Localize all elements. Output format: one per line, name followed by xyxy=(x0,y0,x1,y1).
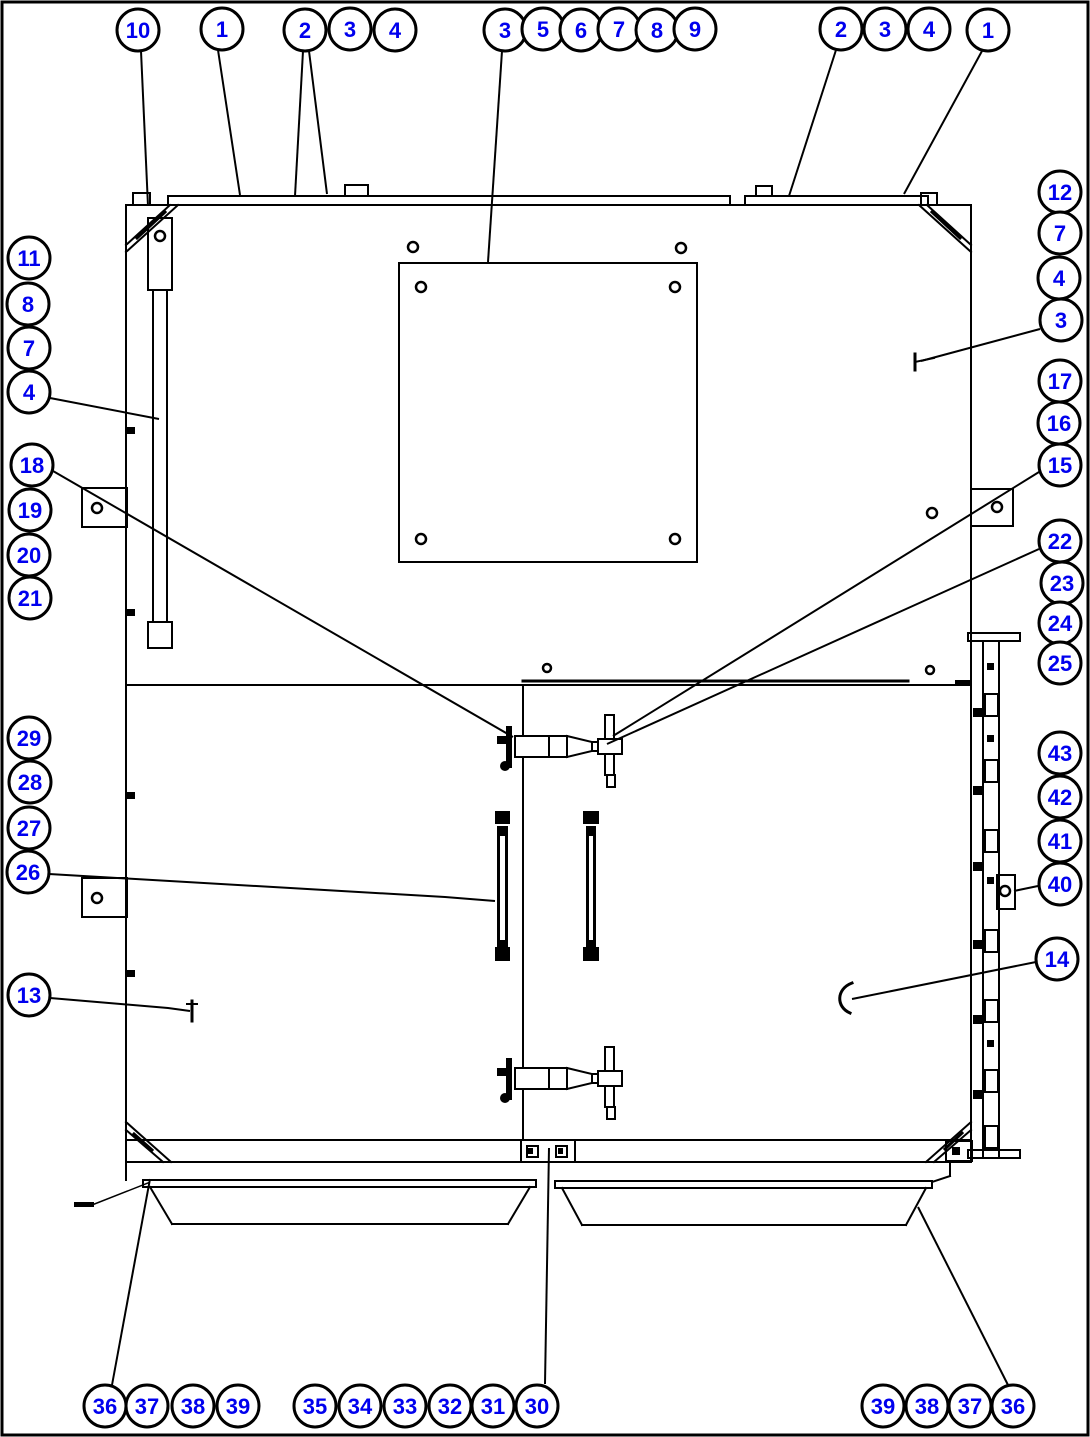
callout-balloon-21: 21 xyxy=(9,577,51,619)
leader-line-3 xyxy=(488,51,502,262)
balloon-number: 28 xyxy=(18,770,42,795)
balloon-number: 38 xyxy=(181,1394,205,1419)
callout-balloon-3: 3 xyxy=(329,8,371,50)
callout-balloon-1: 1 xyxy=(967,9,1009,51)
callout-balloon-7: 7 xyxy=(8,327,50,369)
callout-balloon-29: 29 xyxy=(8,717,50,759)
callout-balloon-30: 30 xyxy=(516,1385,558,1427)
door-hook xyxy=(840,983,852,1013)
balloon-number: 34 xyxy=(348,1394,373,1419)
leader-line-10 xyxy=(141,51,148,206)
leader-line-18 xyxy=(53,471,513,737)
balloon-number: 40 xyxy=(1048,872,1072,897)
callout-balloon-4: 4 xyxy=(1038,257,1080,299)
callout-balloon-6: 6 xyxy=(560,9,602,51)
balloon-number: 9 xyxy=(689,17,701,42)
balloon-number: 6 xyxy=(575,18,587,43)
leader-line-36 xyxy=(918,1207,1008,1385)
corner-gusset-top-left xyxy=(126,205,178,252)
balloon-number: 43 xyxy=(1048,741,1072,766)
callout-balloon-17: 17 xyxy=(1039,360,1081,402)
balloon-number: 7 xyxy=(613,17,625,42)
right-door-handle xyxy=(583,811,599,961)
balloon-number: 33 xyxy=(393,1394,417,1419)
leader-line-40 xyxy=(1014,886,1038,891)
leader-line-2 xyxy=(295,51,303,196)
callout-balloon-37: 37 xyxy=(126,1385,168,1427)
callout-balloon-14: 14 xyxy=(1036,938,1078,980)
balloon-number: 37 xyxy=(135,1394,159,1419)
roof-rail xyxy=(133,185,937,205)
upper-turnbuckle-latch xyxy=(497,715,622,787)
callout-balloon-43: 43 xyxy=(1039,732,1081,774)
callout-balloon-39: 39 xyxy=(862,1385,904,1427)
callout-balloon-16: 16 xyxy=(1038,402,1080,444)
callout-balloon-32: 32 xyxy=(429,1385,471,1427)
balloon-number: 3 xyxy=(499,18,511,43)
callout-balloon-24: 24 xyxy=(1039,602,1081,644)
balloon-number: 25 xyxy=(1048,651,1072,676)
callout-balloon-5: 5 xyxy=(522,8,564,50)
leader-line-4 xyxy=(50,398,159,419)
leader-line-26 xyxy=(49,874,495,901)
callout-balloon-7: 7 xyxy=(1039,212,1081,254)
balloon-number: 3 xyxy=(1055,308,1067,333)
callout-balloon-22: 22 xyxy=(1039,520,1081,562)
callout-balloon-18: 18 xyxy=(11,444,53,486)
callout-balloon-33: 33 xyxy=(384,1385,426,1427)
balloon-number: 30 xyxy=(525,1394,549,1419)
balloon-number: 31 xyxy=(481,1394,505,1419)
callout-balloon-2: 2 xyxy=(820,8,862,50)
callout-balloon-31: 31 xyxy=(472,1385,514,1427)
callout-balloon-38: 38 xyxy=(906,1385,948,1427)
callout-balloon-25: 25 xyxy=(1039,642,1081,684)
balloon-number: 4 xyxy=(1053,266,1066,291)
left-edge-bolts xyxy=(127,427,135,977)
callout-balloon-13: 13 xyxy=(8,974,50,1016)
balloon-number: 16 xyxy=(1047,411,1071,436)
balloon-number: 24 xyxy=(1048,611,1073,636)
balloon-number: 3 xyxy=(344,17,356,42)
left-hinge-strip xyxy=(148,218,172,648)
balloon-number: 21 xyxy=(18,586,42,611)
balloon-number: 4 xyxy=(923,17,936,42)
balloon-number: 8 xyxy=(22,292,34,317)
balloon-number: 17 xyxy=(1048,369,1072,394)
callout-balloon-34: 34 xyxy=(339,1385,381,1427)
corner-gusset-bottom-left xyxy=(126,1122,171,1162)
callout-balloon-3: 3 xyxy=(484,9,526,51)
balloon-number: 35 xyxy=(303,1394,327,1419)
balloon-number: 8 xyxy=(651,18,663,43)
balloon-number: 27 xyxy=(17,816,41,841)
left-door-handle xyxy=(495,811,510,961)
callout-balloon-7: 7 xyxy=(598,8,640,50)
callout-balloon-36: 36 xyxy=(84,1385,126,1427)
balloon-number: 32 xyxy=(438,1394,462,1419)
leader-line-15 xyxy=(613,472,1039,736)
leader-line-2 xyxy=(789,50,836,196)
callout-balloon-36: 36 xyxy=(992,1385,1034,1427)
leader-lines xyxy=(49,50,1040,1385)
balloon-number: 1 xyxy=(982,18,994,43)
leader-line-36 xyxy=(112,1179,150,1385)
lower-turnbuckle-latch xyxy=(497,1047,622,1119)
balloon-number: 36 xyxy=(1001,1394,1025,1419)
callout-balloon-20: 20 xyxy=(8,534,50,576)
mounting-bracket-right xyxy=(971,489,1013,526)
access-plate xyxy=(399,242,697,562)
leader-line-2 xyxy=(309,51,327,194)
balloon-number: 29 xyxy=(17,726,41,751)
balloon-number: 1 xyxy=(216,17,228,42)
assembly-diagram-canvas: 1012343567892341127431716152223242543424… xyxy=(0,0,1090,1437)
balloon-number: 7 xyxy=(23,336,35,361)
parts-diagram-page: 1012343567892341127431716152223242543424… xyxy=(0,0,1090,1437)
mounting-bracket-left-lower xyxy=(82,878,127,917)
callout-balloon-3: 3 xyxy=(1040,299,1082,341)
cabinet-assembly-drawing xyxy=(74,185,1020,1225)
callout-balloon-3: 3 xyxy=(864,8,906,50)
callout-balloon-35: 35 xyxy=(294,1385,336,1427)
callout-balloon-9: 9 xyxy=(674,8,716,50)
balloon-number: 38 xyxy=(915,1394,939,1419)
mounting-bracket-left-upper xyxy=(82,488,127,527)
mid-divider-rail xyxy=(126,680,972,685)
callout-balloon-4: 4 xyxy=(374,9,416,51)
callout-balloon-12: 12 xyxy=(1039,171,1081,213)
callout-balloon-28: 28 xyxy=(9,761,51,803)
callout-balloon-15: 15 xyxy=(1039,444,1081,486)
callout-balloon-38: 38 xyxy=(172,1385,214,1427)
callout-balloon-8: 8 xyxy=(7,283,49,325)
cabinet-outline xyxy=(126,205,971,1162)
balloon-number: 39 xyxy=(871,1394,895,1419)
balloon-number: 20 xyxy=(17,543,41,568)
balloon-number: 12 xyxy=(1048,180,1072,205)
balloon-number: 14 xyxy=(1045,947,1070,972)
leader-line-3 xyxy=(921,329,1040,361)
balloon-number: 2 xyxy=(299,18,311,43)
leader-line-14 xyxy=(852,962,1036,999)
balloon-number: 13 xyxy=(17,983,41,1008)
corner-gusset-top-right xyxy=(919,205,971,252)
balloon-number: 10 xyxy=(126,18,150,43)
panel-bolt-holes xyxy=(543,508,937,674)
leader-line-1 xyxy=(904,51,982,194)
leader-line-30 xyxy=(545,1148,549,1384)
balloon-number: 18 xyxy=(20,453,44,478)
balloon-number: 19 xyxy=(18,498,42,523)
air-scoop-tray-right xyxy=(555,1162,950,1225)
balloon-number: 4 xyxy=(23,380,36,405)
balloon-number: 3 xyxy=(879,17,891,42)
callout-balloon-1: 1 xyxy=(201,8,243,50)
balloon-number: 7 xyxy=(1054,221,1066,246)
balloon-number: 4 xyxy=(389,18,402,43)
balloon-number: 11 xyxy=(17,246,40,271)
balloon-number: 39 xyxy=(226,1394,250,1419)
callout-balloon-27: 27 xyxy=(8,807,50,849)
callout-balloon-40: 40 xyxy=(1039,863,1081,905)
callout-balloon-4: 4 xyxy=(8,371,50,413)
balloon-number: 22 xyxy=(1048,529,1072,554)
right-hinge-strip xyxy=(968,633,1020,1158)
callout-balloon-39: 39 xyxy=(217,1385,259,1427)
callout-balloon-41: 41 xyxy=(1039,820,1081,862)
callout-balloon-37: 37 xyxy=(949,1385,991,1427)
callout-balloon-10: 10 xyxy=(117,9,159,51)
balloon-number: 37 xyxy=(958,1394,982,1419)
balloon-number: 41 xyxy=(1048,829,1072,854)
callout-balloon-26: 26 xyxy=(7,851,49,893)
balloon-number: 15 xyxy=(1048,453,1072,478)
callout-balloon-23: 23 xyxy=(1041,562,1083,604)
balloon-number: 42 xyxy=(1048,785,1072,810)
callout-balloon-4: 4 xyxy=(908,8,950,50)
screw-right-panel xyxy=(915,354,934,370)
leader-line-13 xyxy=(50,998,190,1011)
callout-balloon-19: 19 xyxy=(9,489,51,531)
balloon-number: 23 xyxy=(1050,571,1074,596)
callout-balloon-42: 42 xyxy=(1039,776,1081,818)
balloon-number: 36 xyxy=(93,1394,117,1419)
callout-balloon-11: 11 xyxy=(8,237,50,279)
balloon-number: 5 xyxy=(537,17,549,42)
leader-line-1 xyxy=(218,50,240,195)
balloon-number: 2 xyxy=(835,17,847,42)
callout-balloon-2: 2 xyxy=(284,9,326,51)
callout-balloon-8: 8 xyxy=(636,9,678,51)
balloon-number: 26 xyxy=(16,860,40,885)
